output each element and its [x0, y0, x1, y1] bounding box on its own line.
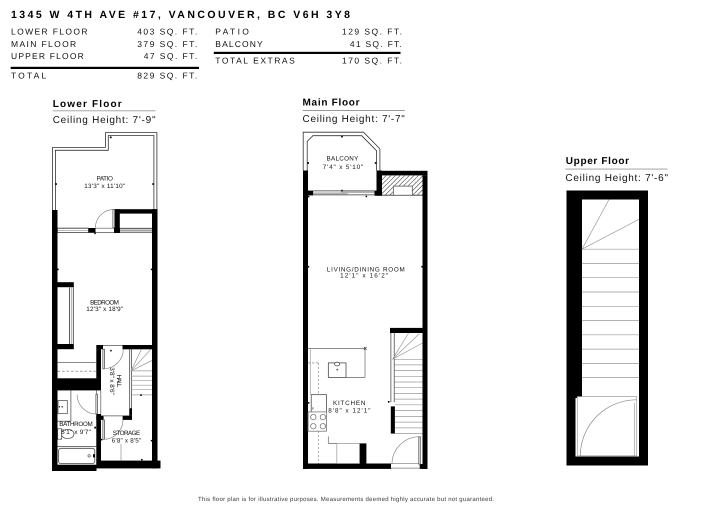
- svg-text:BATHROOM: BATHROOM: [59, 421, 92, 428]
- svg-text:13'3" x 11'10": 13'3" x 11'10": [84, 183, 125, 190]
- svg-text:Upper Floor: Upper Floor: [566, 156, 629, 167]
- svg-text:403 SQ. FT.: 403 SQ. FT.: [137, 26, 197, 36]
- svg-text:170 SQ. FT.: 170 SQ. FT.: [342, 55, 402, 65]
- svg-text:Ceiling Height: 7'-9": Ceiling Height: 7'-9": [53, 115, 156, 126]
- svg-text:12'3" x 18'9": 12'3" x 18'9": [86, 306, 123, 313]
- svg-text:MAIN FLOOR: MAIN FLOOR: [11, 39, 76, 49]
- svg-text:This floor plan is for illustr: This floor plan is for illustrative purp…: [198, 496, 494, 503]
- svg-text:Main Floor: Main Floor: [303, 97, 360, 108]
- svg-text:Ceiling Height: 7'-7": Ceiling Height: 7'-7": [303, 114, 406, 125]
- svg-text:12'1" x 16'2": 12'1" x 16'2": [340, 273, 388, 280]
- svg-text:1345 W 4TH AVE #17, VANCOUVER,: 1345 W 4TH AVE #17, VANCOUVER, BC V6H 3Y…: [11, 9, 350, 21]
- svg-text:47 SQ. FT.: 47 SQ. FT.: [144, 51, 198, 61]
- svg-text:3'8" x 8'6": 3'8" x 8'6": [108, 367, 115, 395]
- svg-text:Lower Floor: Lower Floor: [53, 99, 122, 110]
- svg-text:UPPER FLOOR: UPPER FLOOR: [11, 51, 84, 61]
- svg-text:5'1" x 9'7": 5'1" x 9'7": [61, 429, 91, 436]
- svg-text:HALL: HALL: [115, 375, 122, 388]
- svg-text:129 SQ. FT.: 129 SQ. FT.: [342, 26, 402, 36]
- svg-text:TOTAL EXTRAS: TOTAL EXTRAS: [215, 55, 295, 65]
- svg-text:STORAGE: STORAGE: [113, 430, 141, 437]
- svg-text:BALCONY: BALCONY: [326, 156, 359, 163]
- svg-text:41 SQ. FT.: 41 SQ. FT.: [350, 39, 402, 49]
- svg-text:379 SQ. FT.: 379 SQ. FT.: [137, 39, 197, 49]
- svg-text:LOWER FLOOR: LOWER FLOOR: [11, 26, 88, 36]
- svg-text:6'8" x 8'5": 6'8" x 8'5": [112, 438, 142, 445]
- svg-text:829 SQ. FT.: 829 SQ. FT.: [137, 70, 197, 80]
- svg-text:KITCHEN: KITCHEN: [333, 400, 366, 407]
- svg-text:7'4" x 5'10": 7'4" x 5'10": [323, 164, 363, 171]
- svg-text:BALCONY: BALCONY: [215, 39, 263, 49]
- svg-text:Ceiling Height: 7'-6": Ceiling Height: 7'-6": [565, 173, 668, 184]
- svg-text:8'8" x 12'1": 8'8" x 12'1": [328, 408, 370, 415]
- svg-text:PATIO: PATIO: [96, 175, 113, 182]
